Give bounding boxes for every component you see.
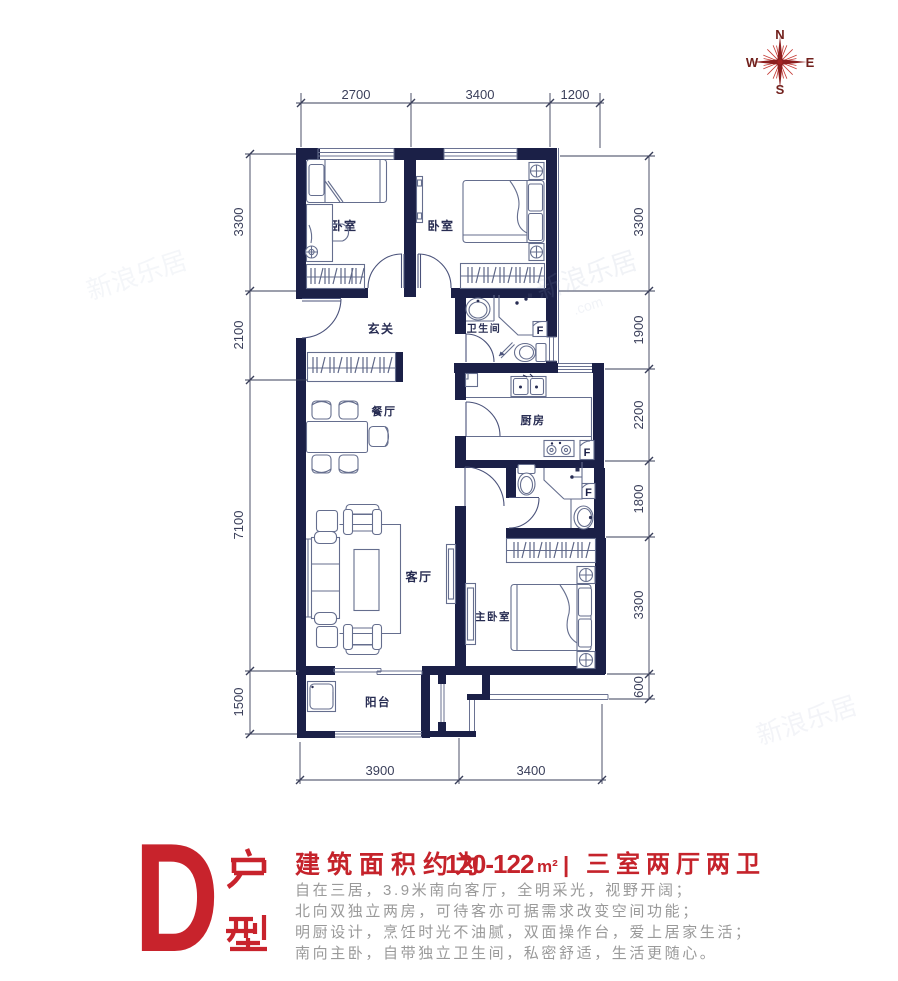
svg-text:F: F [585, 487, 592, 499]
svg-text:W: W [746, 55, 759, 70]
svg-text:1200: 1200 [561, 87, 590, 102]
svg-text:南向主卧，自带独立卫生间，私密舒适，生活更随心。: 南向主卧，自带独立卫生间，私密舒适，生活更随心。 [295, 945, 717, 962]
svg-text:明厨设计，烹饪时光不油腻，双面操作台，爱上居家生活；: 明厨设计，烹饪时光不油腻，双面操作台，爱上居家生活； [295, 923, 753, 941]
svg-text:F: F [537, 325, 544, 337]
svg-text:3400: 3400 [517, 763, 546, 778]
svg-text:1500: 1500 [231, 688, 246, 717]
svg-text:北向双独立两房，可待客亦可据需求改变空间功能；: 北向双独立两房，可待客亦可据需求改变空间功能； [295, 903, 700, 920]
svg-text:三室两厅两卫: 三室两厅两卫 [586, 850, 766, 878]
svg-text:卫生间: 卫生间 [467, 322, 502, 335]
svg-text:主卧室: 主卧室 [475, 610, 511, 623]
svg-text:2700: 2700 [342, 87, 371, 102]
svg-text:厨房: 厨房 [521, 413, 546, 427]
svg-text:m²: m² [537, 857, 558, 876]
svg-text:120-122: 120-122 [445, 849, 534, 879]
svg-text:3300: 3300 [231, 208, 246, 237]
svg-text:7100: 7100 [231, 511, 246, 540]
svg-text:卧室: 卧室 [330, 218, 357, 233]
svg-text:玄关: 玄关 [367, 321, 394, 336]
svg-text:F: F [584, 447, 591, 459]
svg-text:N: N [775, 27, 784, 42]
svg-text:E: E [806, 55, 815, 70]
svg-text:3400: 3400 [466, 87, 495, 102]
svg-text:1900: 1900 [631, 316, 646, 345]
svg-text:|: | [563, 852, 569, 877]
svg-text:2200: 2200 [631, 401, 646, 430]
svg-text:3900: 3900 [366, 763, 395, 778]
svg-text:D: D [134, 811, 219, 981]
svg-text:600: 600 [631, 676, 646, 698]
svg-text:自在三居，3.9米南向客厅，全明采光，视野开阔；: 自在三居，3.9米南向客厅，全明采光，视野开阔； [295, 881, 693, 899]
svg-text:3300: 3300 [631, 208, 646, 237]
svg-text:3300: 3300 [631, 591, 646, 620]
svg-text:2100: 2100 [231, 321, 246, 350]
svg-text:客厅: 客厅 [404, 569, 432, 584]
svg-text:1800: 1800 [631, 485, 646, 514]
svg-text:卧室: 卧室 [427, 218, 454, 233]
svg-text:阳台: 阳台 [365, 695, 391, 709]
svg-text:餐厅: 餐厅 [371, 404, 397, 418]
svg-text:S: S [776, 82, 785, 97]
